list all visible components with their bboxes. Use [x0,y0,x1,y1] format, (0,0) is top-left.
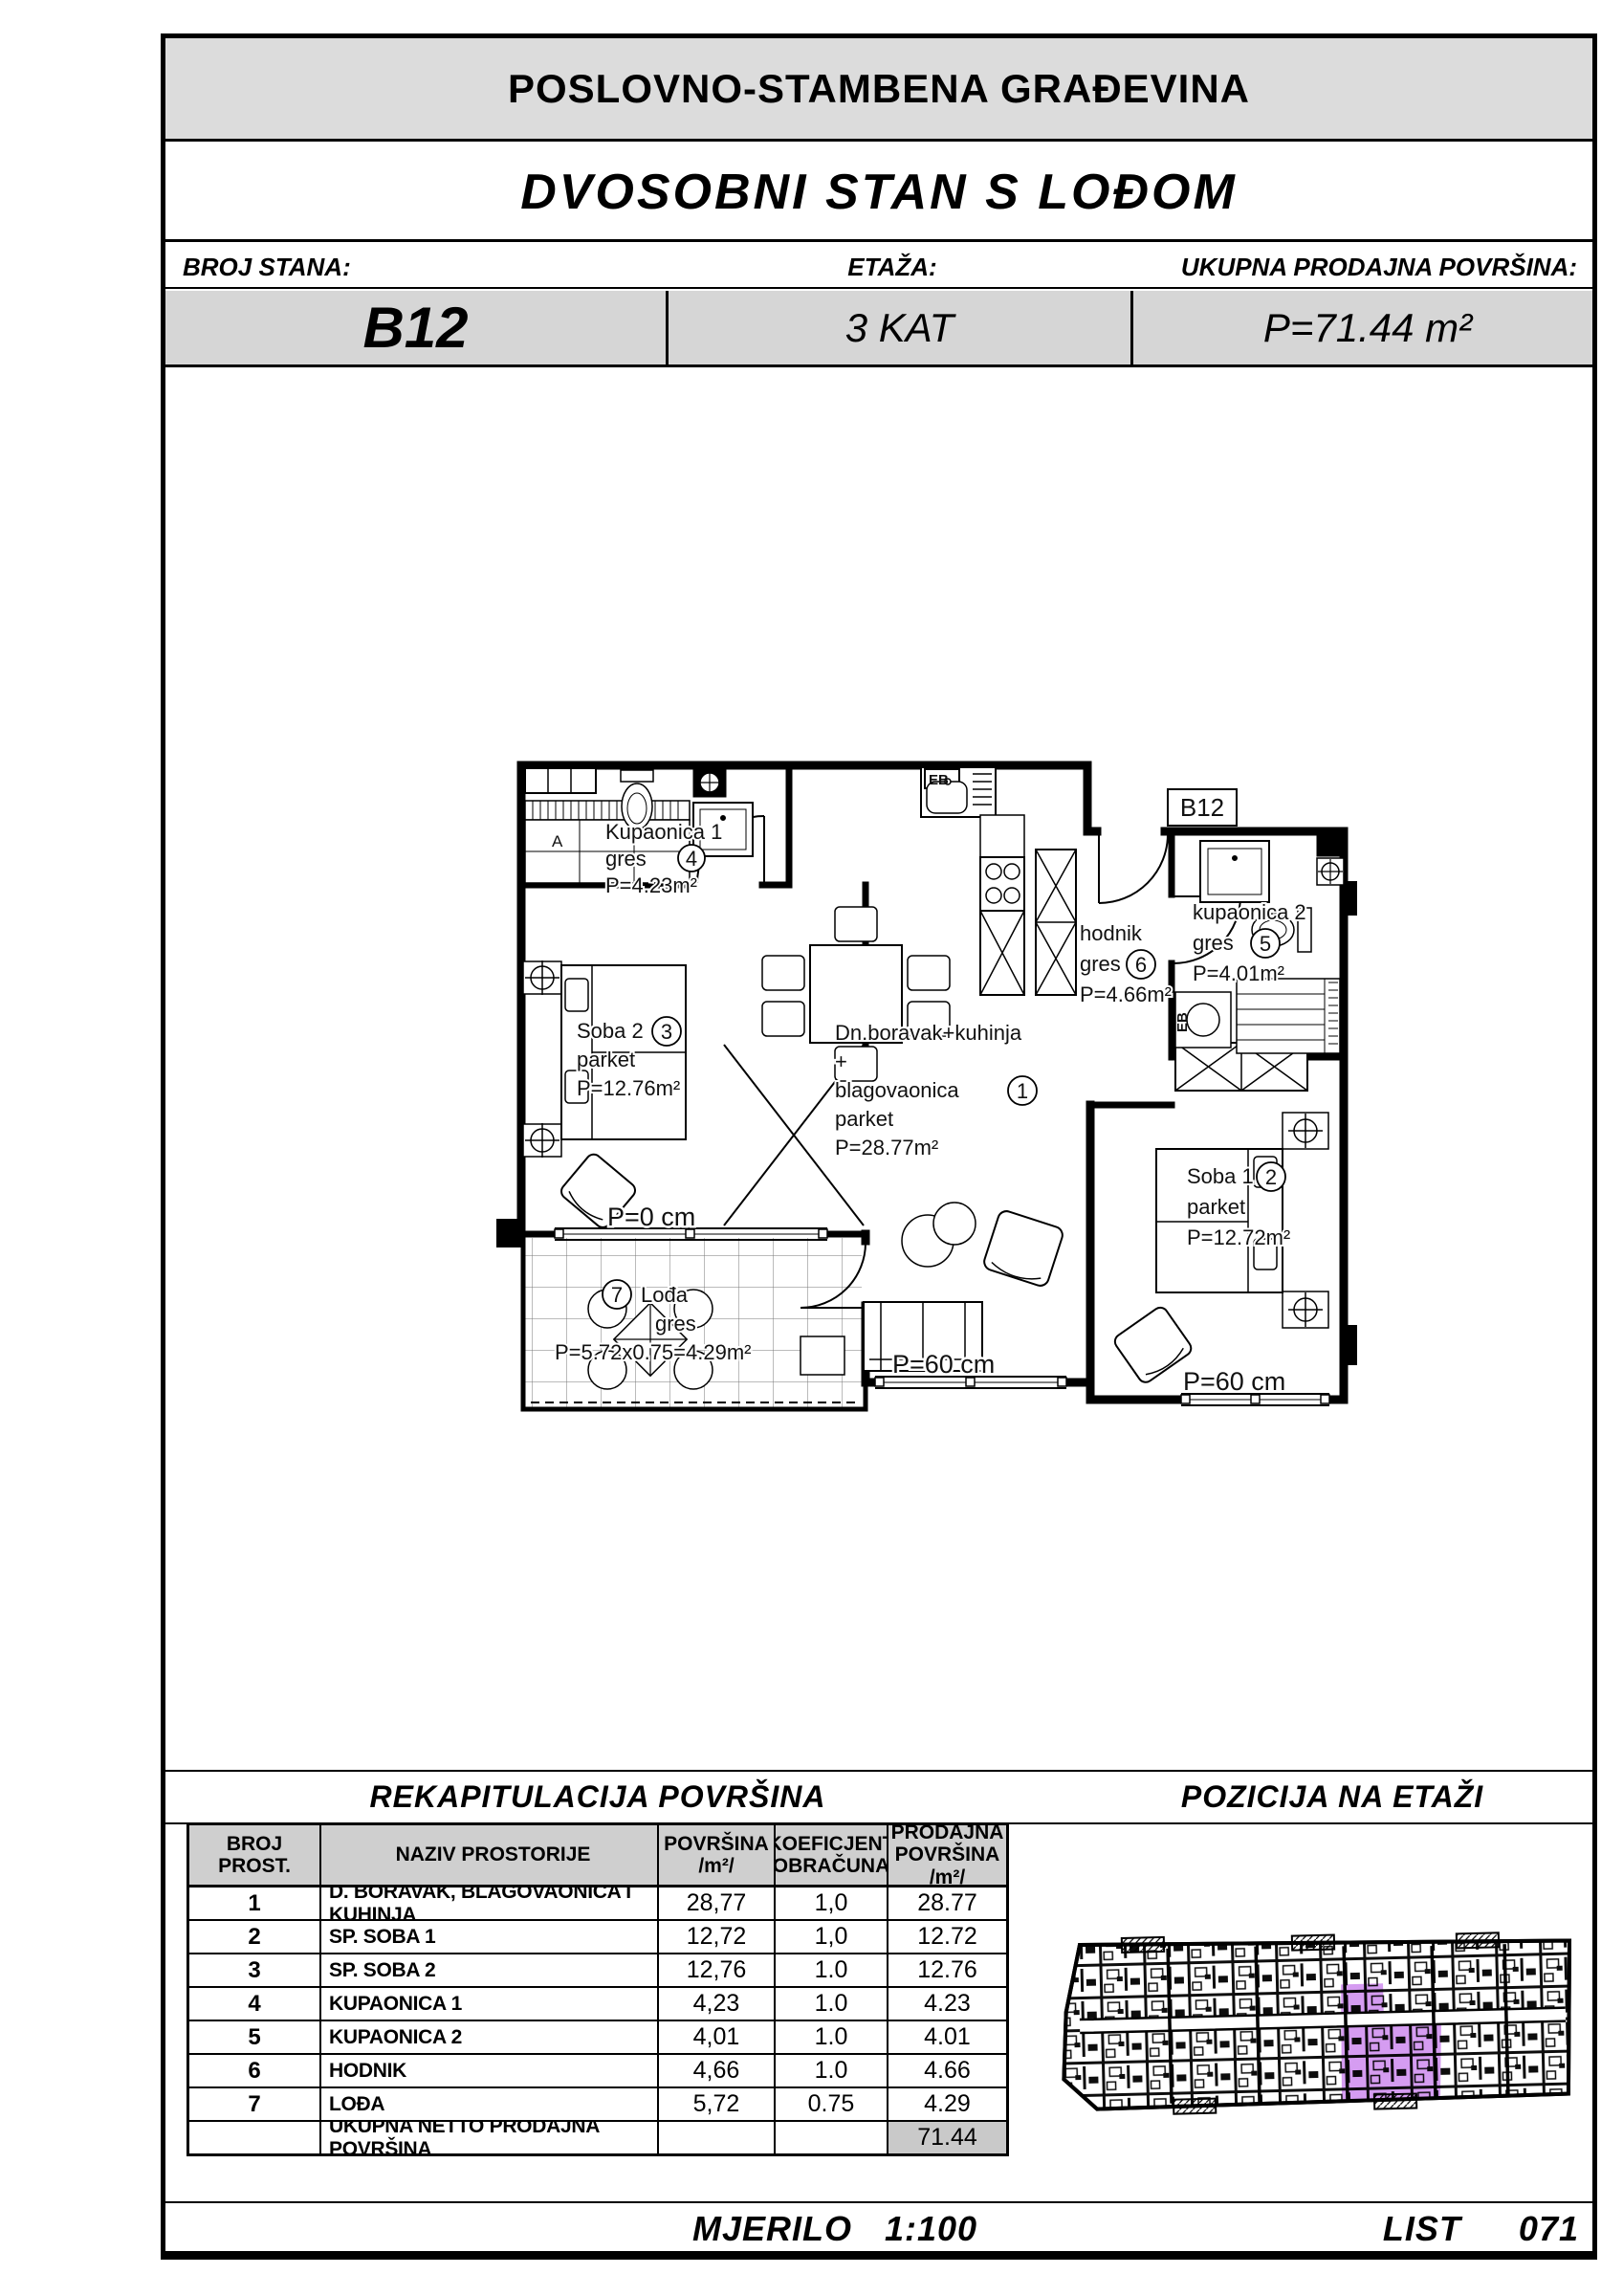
soba1-name: Soba 1 [1187,1164,1254,1188]
sheet-value: 071 [1519,2209,1579,2248]
label-broj-stana: BROJ STANA: [183,253,351,282]
table-row: 3 SP. SOBA 2 12,76 1.0 12.76 [189,1954,1006,1988]
label-etaza: ETAŽA: [797,253,988,282]
kitchen-eb-label: EB [929,772,949,788]
lodja-area: P=5.72x0.75=4.29m² [555,1340,751,1364]
living-l2: + [835,1049,847,1073]
living-l3: blagovaonica [835,1078,959,1102]
sheet-number-text: LIST071 [1383,2209,1579,2249]
soba2-no: 3 [661,1020,672,1044]
lodja-no: 7 [611,1283,623,1307]
table-row: 6 HODNIK 4,66 1.0 4.66 [189,2055,1006,2088]
kupaonica2-name: kupaonica 2 [1193,900,1306,924]
scale-text: MJERILO1:100 [615,2209,1055,2249]
living-l1: Dn.boravak+kuhinja [835,1021,1022,1045]
hdr-broj-prost: BROJ PROST. [189,1833,319,1877]
soba1-no: 2 [1265,1165,1277,1189]
living-l4: parket [835,1107,893,1131]
a-mark: A [552,832,563,850]
info-values-row: B12 3 KAT P=71.44 m² [165,291,1592,367]
floor-plan-sheet: POSLOVNO-STAMBENA GRAĐEVINA DVOSOBNI STA… [0,0,1623,2296]
sheet-label: LIST [1383,2209,1461,2248]
building-title: POSLOVNO-STAMBENA GRAĐEVINA [165,38,1592,142]
total-value: 71.44 [888,2122,1006,2153]
parapet-p60-soba1: P=60 cm [1183,1367,1285,1396]
soba2-name: Soba 2 [577,1019,644,1043]
floor-plan-drawing: B12 Kupaonica 1 gres 4 P=4.23m² Soba 2 3… [464,751,1401,1459]
unit-title: DVOSOBNI STAN S LOĐOM [165,144,1592,242]
table-row: 7 LOĐA 5,72 0.75 4.29 [189,2088,1006,2122]
mini-plan-svg [1057,1926,1578,2117]
unit-tag-text: B12 [1180,793,1224,822]
table-row: 1 D. BORAVAK, BLAGOVAONICA I KUHINJA 28,… [189,1888,1006,1921]
soba1-floor: parket [1187,1195,1245,1219]
kupaonica1-area: P=4.23m² [605,873,697,897]
unit-tag: B12 [1168,789,1237,826]
value-etaza: 3 KAT [669,291,1133,364]
total-label: UKUPNA NETTO PRODAJNA POVRŠINA [321,2122,659,2153]
hdr-prodajna: POVRŠINA /m²/ [888,1843,1006,1885]
hodnik-no: 6 [1135,953,1147,977]
living-area: P=28.77m² [835,1136,938,1159]
table-row: 4 KUPAONICA 1 4,23 1.0 4.23 [189,1988,1006,2021]
washer-eb-label: EB [1174,1012,1191,1032]
living-no: 1 [1017,1079,1028,1103]
section-titles-band: REKAPITULACIJA POVRŠINA POZICIJA NA ETAŽ… [165,1770,1592,1824]
soba2-area: P=12.76m² [577,1076,680,1100]
parapet-p0: P=0 cm [607,1203,695,1231]
hodnik-name: hodnik [1080,921,1143,945]
soba1-area: P=12.72m² [1187,1225,1290,1249]
hodnik-area: P=4.66m² [1080,982,1172,1006]
mini-building [1061,1928,1573,2117]
footer: MJERILO1:100 LIST071 [165,2201,1592,2251]
parapet-p60-living: P=60 cm [892,1350,995,1379]
value-ukupna: P=71.44 m² [1133,291,1602,364]
recap-header-row: BROJ PROST. NAZIV PROSTORIJE POVRŠINA /m… [189,1825,1006,1888]
kupaonica1-no: 4 [686,847,697,871]
kupaonica2-area: P=4.01m² [1193,961,1284,985]
recap-title: REKAPITULACIJA POVRŠINA [165,1772,1030,1822]
hdr-povrsina: POVRŠINA /m²/ [659,1833,774,1877]
kupaonica1-floor: gres [605,847,647,871]
table-row: 5 KUPAONICA 2 4,01 1.0 4.01 [189,2021,1006,2055]
dining-set [762,907,950,1081]
hdr-koeficjent: OBRAČUNA [776,1855,888,1877]
table-total-row: UKUPNA NETTO PRODAJNA POVRŠINA 71.44 [189,2122,1006,2153]
unit-title-text: DVOSOBNI STAN S LOĐOM [520,164,1238,221]
recap-table: BROJ PROST. NAZIV PROSTORIJE POVRŠINA /m… [186,1822,1009,2156]
lodja-name: Lođa [641,1283,689,1307]
scale-value: 1:100 [885,2209,977,2248]
kupaonica2-floor: gres [1193,931,1234,955]
sheet-frame: POSLOVNO-STAMBENA GRAĐEVINA DVOSOBNI STA… [161,33,1597,2260]
building-title-text: POSLOVNO-STAMBENA GRAĐEVINA [508,66,1250,112]
hdr-naziv: NAZIV PROSTORIJE [396,1843,591,1865]
value-broj-stana: B12 [165,291,669,364]
info-labels-row: BROJ STANA: ETAŽA: UKUPNA PRODAJNA POVRŠ… [165,245,1592,289]
kupaonica1-name: Kupaonica 1 [605,820,722,844]
lodja-floor: gres [655,1312,696,1336]
table-row: 2 SP. SOBA 1 12,72 1,0 12.72 [189,1921,1006,1954]
kupaonica2-no: 5 [1260,932,1271,956]
soba2-floor: parket [577,1048,635,1071]
position-title: POZICIJA NA ETAŽI [1064,1772,1600,1822]
label-ukupna: UKUPNA PRODAJNA POVRŠINA: [1181,253,1577,282]
scale-label: MJERILO [692,2209,852,2248]
position-mini-plan [1057,1926,1578,2117]
floor-plan-svg: B12 Kupaonica 1 gres 4 P=4.23m² Soba 2 3… [464,751,1401,1459]
hodnik-floor: gres [1080,952,1121,976]
